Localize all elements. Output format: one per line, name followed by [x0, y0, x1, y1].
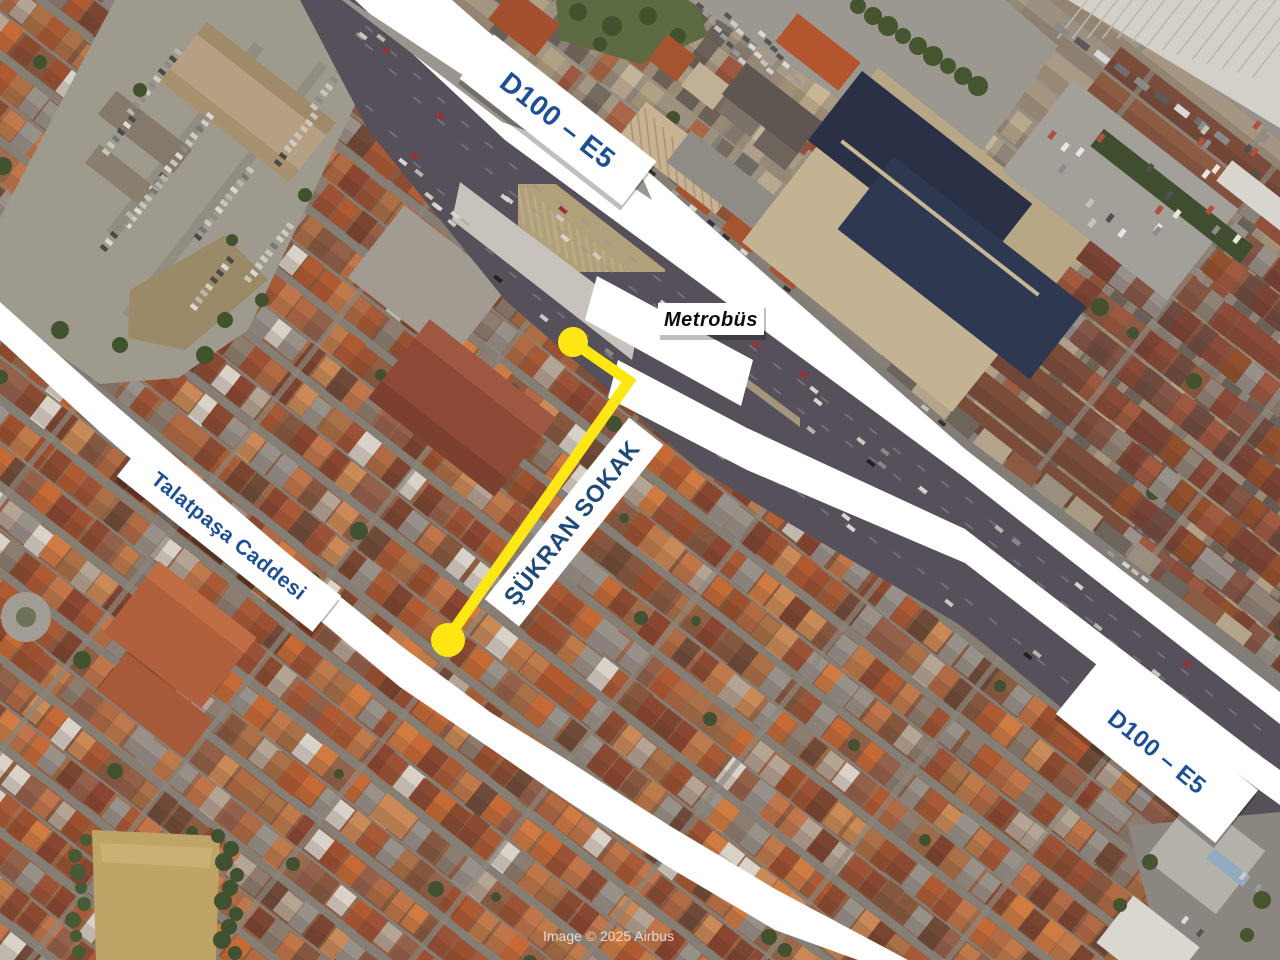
svg-text:Image © 2025 Airbus: Image © 2025 Airbus	[543, 928, 674, 944]
svg-text:Metrobüs: Metrobüs	[664, 309, 758, 331]
